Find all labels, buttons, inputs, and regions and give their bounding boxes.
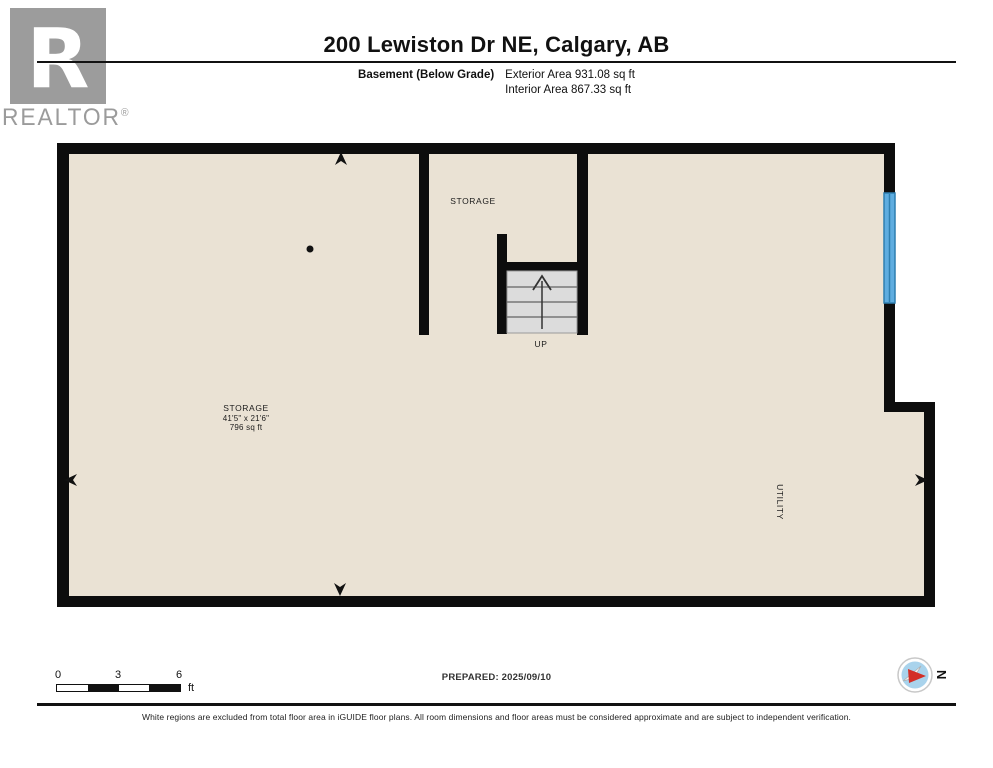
window (884, 193, 895, 303)
storage-area: 796 sq ft (230, 423, 263, 432)
page-title: 200 Lewiston Dr NE, Calgary, AB (120, 32, 873, 58)
registered-mark: ® (121, 107, 131, 119)
wall-stair-left (497, 234, 507, 334)
scale-unit: ft (188, 682, 194, 694)
floor-area (63, 148, 930, 602)
storage-room-label: STORAGE (223, 403, 269, 413)
compass-north-label: N (934, 670, 949, 679)
scale-segment (119, 685, 150, 691)
page: R REALTOR® 200 Lewiston Dr NE, Calgary, … (0, 0, 993, 768)
wall-left (57, 143, 69, 607)
wall-bottom (57, 596, 935, 607)
scale-segment (149, 685, 180, 691)
scale-segment (57, 685, 88, 691)
interior-area: Interior Area 867.33 sq ft (505, 84, 635, 96)
floor-plan: STORAGE STORAGE 41'5" x 21'6" 796 sq ft … (0, 138, 993, 618)
disclaimer-text: White regions are excluded from total fl… (37, 712, 956, 722)
wall-stair-top (507, 262, 577, 271)
utility-label: UTILITY (775, 484, 785, 520)
stairs (507, 271, 577, 333)
support-post (307, 246, 314, 253)
scale-bar (56, 684, 181, 692)
wall-right-lower (924, 402, 935, 607)
up-label: UP (534, 339, 547, 349)
wall-storage-left (419, 152, 429, 335)
wall-stair-right (577, 152, 588, 335)
header-underline (37, 61, 956, 63)
realtor-wordmark-text: REALTOR (2, 104, 121, 131)
area-summary: Exterior Area 931.08 sq ft Interior Area… (505, 69, 635, 96)
wall-top (57, 143, 895, 154)
wall-right-upper-b (884, 303, 895, 412)
wall-right-upper-a (884, 143, 895, 193)
plan-subheader: Basement (Below Grade) Exterior Area 931… (0, 69, 993, 96)
disclaimer-divider (37, 703, 956, 706)
storage-dimensions: 41'5" x 21'6" (223, 414, 269, 423)
compass-icon: N (893, 654, 968, 700)
exterior-area: Exterior Area 931.08 sq ft (505, 69, 635, 81)
realtor-wordmark: REALTOR® (2, 104, 130, 132)
floor-label: Basement (Below Grade) (358, 69, 494, 96)
storage-top-label: STORAGE (450, 196, 496, 206)
prepared-date: PREPARED: 2025/09/10 (0, 672, 993, 683)
scale-segment (88, 685, 119, 691)
